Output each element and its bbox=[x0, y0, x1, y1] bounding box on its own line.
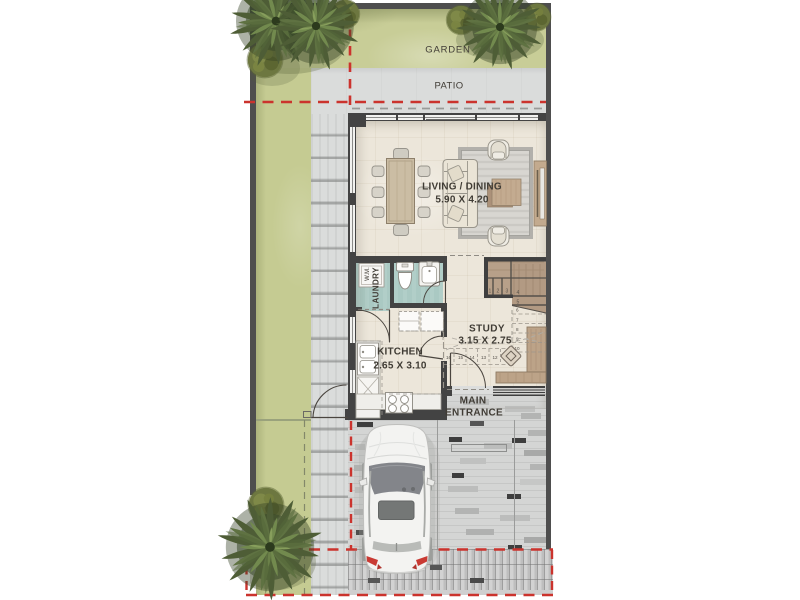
svg-text:7: 7 bbox=[516, 318, 519, 323]
svg-text:8: 8 bbox=[516, 327, 519, 332]
svg-text:12: 12 bbox=[493, 355, 499, 360]
svg-text:3: 3 bbox=[506, 289, 509, 295]
svg-text:15: 15 bbox=[458, 355, 464, 360]
svg-text:2: 2 bbox=[497, 289, 500, 295]
svg-text:13: 13 bbox=[481, 355, 487, 360]
svg-text:5: 5 bbox=[517, 300, 520, 306]
svg-text:4: 4 bbox=[517, 290, 520, 296]
svg-text:6: 6 bbox=[516, 308, 519, 313]
svg-text:1: 1 bbox=[489, 289, 492, 295]
